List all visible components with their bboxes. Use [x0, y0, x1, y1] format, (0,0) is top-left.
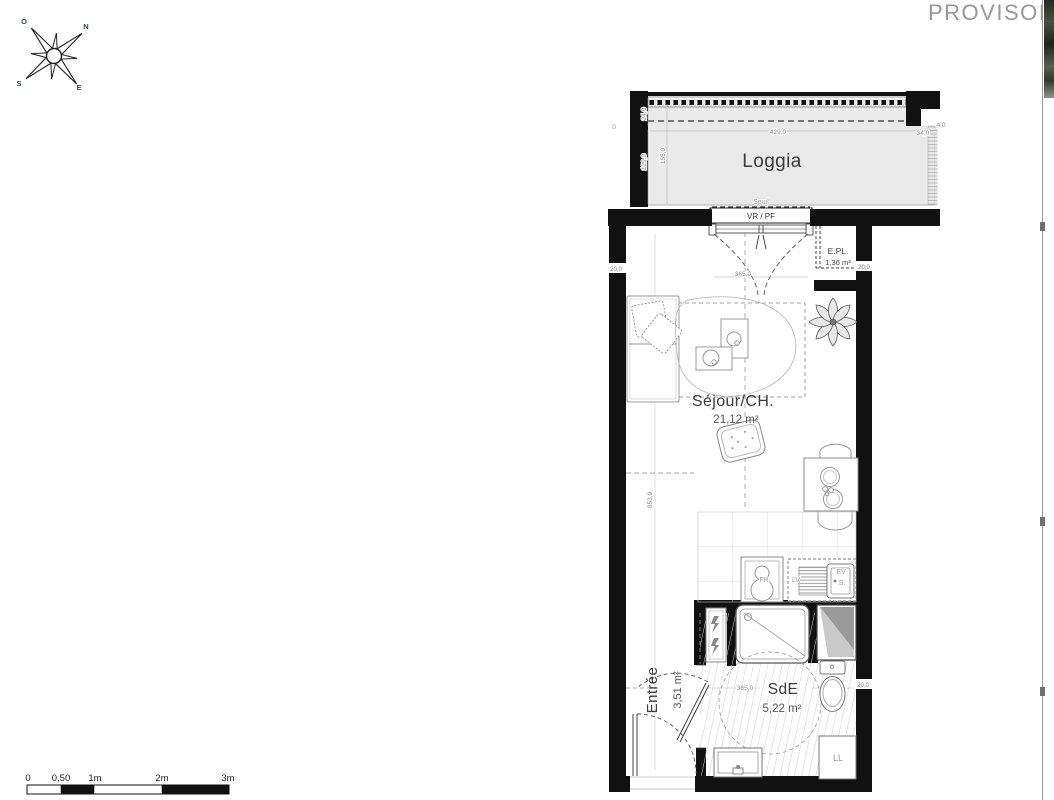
epl-area: 1,36 m³ — [825, 258, 851, 267]
dim-four: 4,0 — [936, 122, 945, 129]
scale-label-3m: 3m — [221, 773, 234, 784]
page: PROVISOIRE O N S E — [0, 0, 1054, 800]
washbasin — [714, 748, 762, 777]
compass-label-south: S — [16, 79, 21, 88]
dim-wall-right: 20,0 — [858, 265, 870, 271]
shower — [736, 605, 809, 663]
side-table — [696, 347, 732, 370]
panel-tick — [1040, 517, 1045, 526]
panel-tick — [1040, 687, 1045, 696]
scale-label-2m: 2m — [155, 773, 168, 784]
sejour-area: 21,12 m² — [713, 414, 759, 426]
entree-area: 3,51 m² — [672, 671, 684, 709]
loggia-room: 429,0 34,0 0 4,0 24,0 129,0 155,0 Loggia — [612, 91, 946, 207]
kitchen-sink: EV S. — [827, 564, 854, 598]
door-swing-arc — [764, 234, 808, 295]
dishwasher — [799, 567, 828, 595]
photo-thumbnail-edge — [1044, 0, 1054, 98]
epl-label: E.PL. — [828, 246, 849, 256]
seuil-label: Seuil — [753, 199, 769, 206]
compass-rose: O N S E — [8, 8, 100, 96]
panel-tick — [1040, 222, 1045, 231]
door-swing-arc — [637, 714, 696, 773]
dim-sde-wall: 20,0 — [857, 683, 869, 689]
entry-door — [630, 714, 696, 792]
fridge-label: FR — [759, 577, 768, 584]
dim-loggia-side: 34,0 — [917, 130, 930, 137]
dim-loggia-d1: 129,0 — [641, 153, 648, 170]
window-label: VR / PF — [747, 212, 775, 221]
floor-plan: 429,0 34,0 0 4,0 24,0 129,0 155,0 Loggia… — [600, 85, 950, 797]
compass-label-east: E — [76, 83, 81, 92]
plant — [809, 298, 857, 346]
door-swing-arc — [714, 234, 758, 295]
dim-zero: 0 — [612, 124, 616, 131]
provisoire-watermark: PROVISOIRE — [928, 0, 1054, 26]
dim-loggia-rail: 24,0 — [641, 107, 648, 120]
kitchen-counter: LV EV S. — [788, 559, 856, 601]
railing — [648, 97, 906, 107]
epl-closet: E.PL. 1,36 m³ — [816, 226, 856, 268]
dim-room-height: 853,9 — [647, 491, 654, 508]
sde-area: 5,22 m² — [763, 703, 802, 715]
side-panel-border — [1042, 0, 1043, 800]
washer-label: LL — [833, 753, 843, 763]
dishwasher-label: LV — [792, 577, 800, 584]
scale-label-1m: 1m — [88, 773, 101, 784]
scale-label-050: 0,50 — [52, 773, 71, 784]
sde-label: SdE — [768, 681, 799, 698]
loggia-right-band — [928, 126, 937, 205]
dim-loggia-d2: 155,0 — [660, 147, 667, 164]
scale-bar: 0 0,50 1m 2m 3m — [20, 772, 235, 799]
entree-label: Entrée — [644, 667, 661, 714]
bed — [627, 296, 683, 402]
compass-label-north: N — [83, 22, 88, 31]
dim-window-width: 365,0 — [735, 271, 752, 278]
washing-machine: LL — [819, 736, 856, 779]
compass-center — [47, 49, 62, 64]
siphon-label: S. — [839, 580, 846, 587]
sejour-label: Séjour/CH. — [692, 393, 774, 410]
dim-loggia-width: 429,0 — [770, 129, 787, 136]
dim-wall-left: 20,0 — [610, 267, 622, 273]
dim-sde-width: 365,0 — [737, 685, 754, 692]
kitchen: FR LV EV S. — [698, 512, 856, 602]
entree-room: Entrée 3,51 m² — [626, 473, 700, 792]
fridge: FR — [741, 557, 783, 602]
towel-radiator — [706, 608, 726, 662]
scale-label-0: 0 — [25, 773, 30, 784]
cabinet — [817, 605, 856, 660]
window-vrpf: Seuil VR / PF — [709, 199, 813, 295]
toilet — [820, 661, 845, 712]
loggia-label: Loggia — [742, 151, 801, 172]
sink-label: EV — [836, 569, 846, 576]
compass-label-west: O — [21, 17, 27, 26]
